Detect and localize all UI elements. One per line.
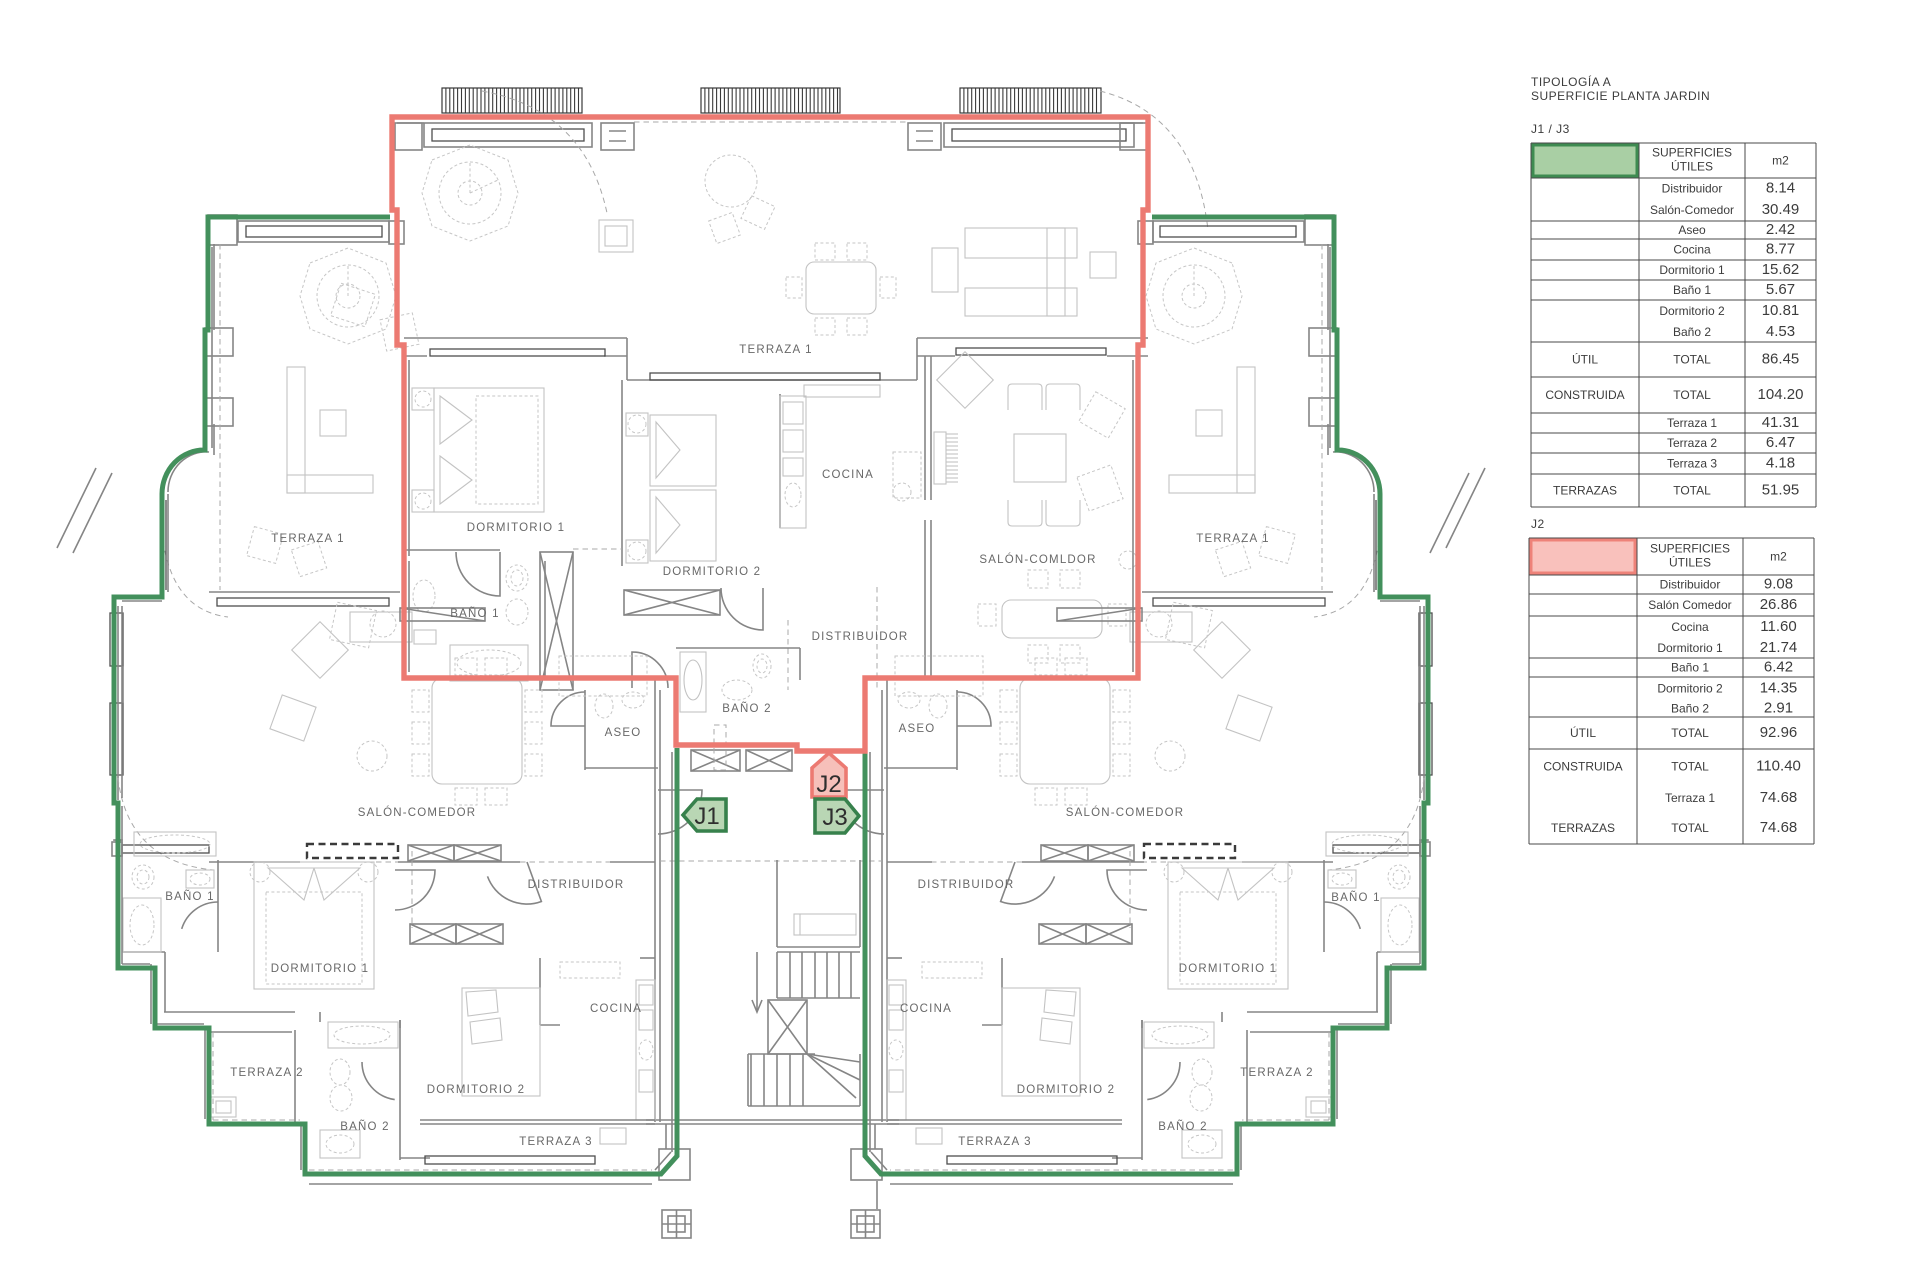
svg-text:TOTAL: TOTAL	[1671, 726, 1709, 740]
svg-text:SUPERFICIES: SUPERFICIES	[1650, 542, 1730, 556]
svg-text:11.60: 11.60	[1760, 618, 1796, 635]
svg-text:TOTAL: TOTAL	[1671, 760, 1709, 774]
svg-text:J3: J3	[822, 804, 847, 831]
svg-text:Baño 1: Baño 1	[1671, 661, 1709, 675]
svg-text:BAÑO 1: BAÑO 1	[165, 890, 214, 903]
svg-text:BAÑO 2: BAÑO 2	[1158, 1120, 1207, 1133]
svg-text:DORMITORIO 1: DORMITORIO 1	[271, 963, 370, 975]
svg-text:DORMITORIO 2: DORMITORIO 2	[427, 1084, 526, 1096]
svg-text:2.91: 2.91	[1764, 700, 1793, 717]
svg-text:DORMITORIO 2: DORMITORIO 2	[1017, 1084, 1116, 1096]
svg-text:TOTAL: TOTAL	[1673, 388, 1711, 402]
svg-text:Salón-Comedor: Salón-Comedor	[1650, 203, 1734, 217]
svg-text:Terraza 1: Terraza 1	[1665, 791, 1715, 805]
svg-text:ÚTIL: ÚTIL	[1570, 725, 1596, 740]
svg-text:30.49: 30.49	[1762, 201, 1800, 218]
svg-text:51.95: 51.95	[1762, 482, 1800, 499]
svg-text:6.47: 6.47	[1766, 434, 1795, 451]
svg-text:SUPERFICIES: SUPERFICIES	[1652, 146, 1732, 160]
svg-text:DORMITORIO 1: DORMITORIO 1	[467, 522, 566, 534]
svg-text:DISTRIBUIDOR: DISTRIBUIDOR	[918, 879, 1015, 891]
svg-text:SALÓN-COMLDOR: SALÓN-COMLDOR	[979, 553, 1096, 566]
svg-text:Salón Comedor: Salón Comedor	[1648, 598, 1731, 612]
svg-text:TERRAZAS: TERRAZAS	[1553, 484, 1617, 498]
svg-text:TIPOLOGÍA A: TIPOLOGÍA A	[1531, 74, 1611, 89]
svg-text:ÚTILES: ÚTILES	[1669, 555, 1711, 570]
svg-text:Terraza 3: Terraza 3	[1667, 457, 1717, 471]
svg-text:m2: m2	[1770, 550, 1787, 564]
svg-text:CONSTRUIDA: CONSTRUIDA	[1545, 388, 1624, 402]
svg-text:Distribuidor: Distribuidor	[1662, 182, 1723, 196]
svg-text:m2: m2	[1772, 154, 1789, 168]
svg-text:BAÑO 2: BAÑO 2	[722, 702, 771, 715]
svg-text:Terraza 1: Terraza 1	[1667, 416, 1717, 430]
svg-text:14.35: 14.35	[1760, 680, 1798, 697]
svg-text:4.18: 4.18	[1766, 455, 1795, 472]
svg-text:92.96: 92.96	[1760, 724, 1798, 741]
svg-text:Baño 1: Baño 1	[1673, 283, 1711, 297]
svg-text:Distribuidor: Distribuidor	[1660, 578, 1721, 592]
svg-text:TERRAZA 2: TERRAZA 2	[1240, 1067, 1313, 1079]
svg-text:8.14: 8.14	[1766, 180, 1795, 197]
svg-text:TOTAL: TOTAL	[1671, 821, 1709, 835]
svg-text:Cocina: Cocina	[1671, 620, 1709, 634]
svg-text:DORMITORIO 1: DORMITORIO 1	[1179, 963, 1278, 975]
svg-text:21.74: 21.74	[1760, 639, 1798, 656]
svg-text:TERRAZA 3: TERRAZA 3	[958, 1136, 1031, 1148]
svg-text:TERRAZAS: TERRAZAS	[1551, 821, 1615, 835]
svg-text:SALÓN-COMEDOR: SALÓN-COMEDOR	[358, 806, 476, 819]
svg-text:ÚTILES: ÚTILES	[1671, 159, 1713, 174]
svg-text:5.67: 5.67	[1766, 281, 1795, 298]
svg-text:Terraza 2: Terraza 2	[1667, 436, 1717, 450]
svg-text:TERRAZA 1: TERRAZA 1	[1196, 533, 1269, 545]
svg-text:110.40: 110.40	[1756, 758, 1801, 775]
svg-text:J2: J2	[816, 771, 841, 798]
svg-text:TERRAZA 2: TERRAZA 2	[230, 1067, 303, 1079]
svg-text:TERRAZA 3: TERRAZA 3	[519, 1136, 592, 1148]
svg-text:SUPERFICIE PLANTA JARDIN: SUPERFICIE PLANTA JARDIN	[1531, 89, 1710, 103]
svg-text:COCINA: COCINA	[900, 1003, 952, 1015]
svg-text:BAÑO 1: BAÑO 1	[1331, 891, 1380, 904]
svg-text:10.81: 10.81	[1762, 302, 1800, 319]
svg-text:J2: J2	[1531, 517, 1545, 531]
svg-text:Dormitorio 2: Dormitorio 2	[1657, 682, 1723, 696]
svg-text:4.53: 4.53	[1766, 323, 1795, 340]
svg-text:Aseo: Aseo	[1678, 223, 1706, 237]
svg-text:2.42: 2.42	[1766, 221, 1795, 238]
svg-text:74.68: 74.68	[1760, 819, 1798, 836]
svg-text:Dormitorio 2: Dormitorio 2	[1659, 304, 1725, 318]
svg-text:74.68: 74.68	[1760, 789, 1798, 806]
svg-text:Baño 2: Baño 2	[1671, 702, 1709, 716]
svg-text:DORMITORIO 2: DORMITORIO 2	[663, 566, 762, 578]
svg-text:TOTAL: TOTAL	[1673, 353, 1711, 367]
svg-text:104.20: 104.20	[1758, 386, 1804, 403]
svg-text:COCINA: COCINA	[822, 469, 874, 481]
svg-text:ASEO: ASEO	[899, 723, 936, 735]
svg-text:BAÑO 2: BAÑO 2	[340, 1120, 389, 1133]
svg-text:TOTAL: TOTAL	[1673, 484, 1711, 498]
svg-text:DISTRIBUIDOR: DISTRIBUIDOR	[812, 631, 909, 643]
svg-text:15.62: 15.62	[1762, 261, 1800, 278]
svg-text:ÚTIL: ÚTIL	[1572, 352, 1598, 367]
svg-text:41.31: 41.31	[1762, 414, 1800, 431]
svg-text:Dormitorio 1: Dormitorio 1	[1657, 641, 1723, 655]
svg-text:COCINA: COCINA	[590, 1003, 642, 1015]
svg-text:9.08: 9.08	[1764, 576, 1793, 593]
svg-text:Cocina: Cocina	[1673, 243, 1711, 257]
svg-text:86.45: 86.45	[1762, 351, 1800, 368]
svg-text:8.77: 8.77	[1766, 241, 1795, 258]
svg-text:DISTRIBUIDOR: DISTRIBUIDOR	[528, 879, 625, 891]
svg-text:Dormitorio 1: Dormitorio 1	[1659, 263, 1725, 277]
svg-text:SALÓN-COMEDOR: SALÓN-COMEDOR	[1066, 806, 1184, 819]
svg-text:26.86: 26.86	[1760, 596, 1798, 613]
svg-text:BAÑO 1: BAÑO 1	[450, 607, 499, 620]
svg-text:6.42: 6.42	[1764, 659, 1793, 676]
svg-text:J1 / J3: J1 / J3	[1531, 122, 1570, 136]
svg-text:TERRAZA 1: TERRAZA 1	[739, 344, 812, 356]
svg-text:ASEO: ASEO	[605, 727, 642, 739]
svg-text:Baño 2: Baño 2	[1673, 325, 1711, 339]
svg-text:J1: J1	[694, 803, 719, 830]
svg-text:TERRAZA 1: TERRAZA 1	[271, 533, 344, 545]
svg-text:CONSTRUIDA: CONSTRUIDA	[1543, 760, 1622, 774]
